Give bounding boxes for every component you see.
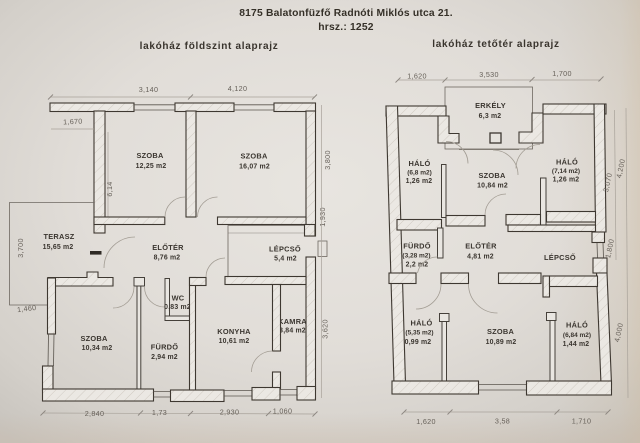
svg-text:10,34 m2: 10,34 m2: [82, 345, 113, 352]
svg-text:3,84 m2: 3,84 m2: [279, 328, 306, 335]
svg-text:(6,84 m2): (6,84 m2): [563, 332, 591, 339]
svg-text:0,99 m2: 0,99 m2: [405, 339, 432, 346]
svg-text:1,44 m2: 1,44 m2: [563, 341, 590, 348]
svg-text:8175 Balatonfüzfő Radnóti Mikl: 8175 Balatonfüzfő Radnóti Miklós utca 21…: [239, 8, 453, 19]
svg-text:ELŐTÉR: ELŐTÉR: [465, 242, 497, 251]
svg-text:2,94 m2: 2,94 m2: [151, 354, 178, 361]
svg-text:SZOBA: SZOBA: [80, 334, 108, 343]
svg-text:8,76 m2: 8,76 m2: [154, 255, 181, 262]
svg-text:WC: WC: [172, 294, 185, 303]
svg-text:(7,14 m2): (7,14 m2): [552, 168, 580, 175]
svg-text:3,140: 3,140: [139, 85, 159, 94]
svg-text:1,930: 1,930: [318, 207, 327, 227]
svg-text:SZOBA: SZOBA: [240, 152, 268, 161]
svg-text:3,800: 3,800: [323, 150, 332, 170]
svg-text:SZOBA: SZOBA: [478, 171, 506, 180]
svg-text:FÜRDŐ: FÜRDŐ: [151, 343, 179, 352]
svg-text:lakóház tetőtér alaprajz: lakóház tetőtér alaprajz: [432, 39, 559, 50]
svg-text:FÜRDŐ: FÜRDŐ: [403, 242, 431, 251]
svg-text:(6,8 m2): (6,8 m2): [407, 170, 432, 177]
svg-text:1,670: 1,670: [63, 116, 83, 126]
svg-text:10,84 m2: 10,84 m2: [477, 183, 508, 190]
svg-text:1,26 m2: 1,26 m2: [406, 178, 433, 185]
svg-text:5,4 m2: 5,4 m2: [274, 256, 297, 263]
svg-text:10,61 m2: 10,61 m2: [219, 338, 250, 345]
svg-text:hrsz.: 1252: hrsz.: 1252: [318, 22, 374, 33]
svg-text:lakóház földszint alaprajz: lakóház földszint alaprajz: [140, 41, 279, 52]
svg-text:1,700: 1,700: [552, 69, 572, 78]
svg-text:1,620: 1,620: [407, 72, 427, 81]
svg-text:KAMRA: KAMRA: [278, 317, 307, 326]
svg-text:0,83 m2: 0,83 m2: [164, 304, 191, 311]
svg-text:HÁLÓ: HÁLÓ: [411, 319, 433, 328]
svg-text:HÁLÓ: HÁLÓ: [566, 321, 588, 330]
svg-text:2,840: 2,840: [85, 409, 105, 418]
svg-text:(3,28 m2): (3,28 m2): [402, 253, 430, 260]
svg-text:HÁLÓ: HÁLÓ: [556, 158, 578, 167]
svg-text:1,26 m2: 1,26 m2: [553, 177, 580, 184]
svg-text:SZOBA: SZOBA: [136, 151, 164, 160]
svg-text:3,700: 3,700: [16, 238, 25, 258]
svg-text:SZOBA: SZOBA: [487, 327, 515, 336]
svg-text:LÉPCSŐ: LÉPCSŐ: [269, 245, 301, 254]
svg-text:10,89 m2: 10,89 m2: [486, 339, 517, 346]
svg-text:6,14: 6,14: [105, 181, 114, 196]
svg-text:3,530: 3,530: [479, 70, 499, 79]
svg-text:16,07 m2: 16,07 m2: [239, 164, 270, 171]
svg-text:12,25 m2: 12,25 m2: [136, 163, 167, 170]
svg-text:TERASZ: TERASZ: [43, 232, 74, 241]
svg-text:1,060: 1,060: [273, 407, 293, 416]
svg-text:1,710: 1,710: [572, 417, 592, 426]
svg-text:3,58: 3,58: [495, 417, 510, 426]
svg-text:HÁLÓ: HÁLÓ: [409, 159, 431, 168]
svg-text:LÉPCSŐ: LÉPCSŐ: [544, 253, 576, 262]
svg-text:ELŐTÉR: ELŐTÉR: [152, 243, 184, 252]
svg-text:(5,35 m2): (5,35 m2): [405, 330, 433, 337]
svg-text:4,120: 4,120: [228, 84, 248, 93]
svg-text:6,3 m2: 6,3 m2: [479, 113, 502, 120]
svg-text:4,81 m2: 4,81 m2: [467, 254, 494, 261]
svg-text:15,65 m2: 15,65 m2: [43, 244, 74, 251]
svg-text:2,2 m2: 2,2 m2: [406, 262, 429, 269]
svg-text:ERKÉLY: ERKÉLY: [475, 101, 506, 110]
svg-text:KONYHA: KONYHA: [217, 327, 251, 336]
svg-text:1,73: 1,73: [152, 408, 167, 417]
svg-text:1,620: 1,620: [416, 417, 436, 426]
svg-text:2,930: 2,930: [220, 408, 240, 417]
